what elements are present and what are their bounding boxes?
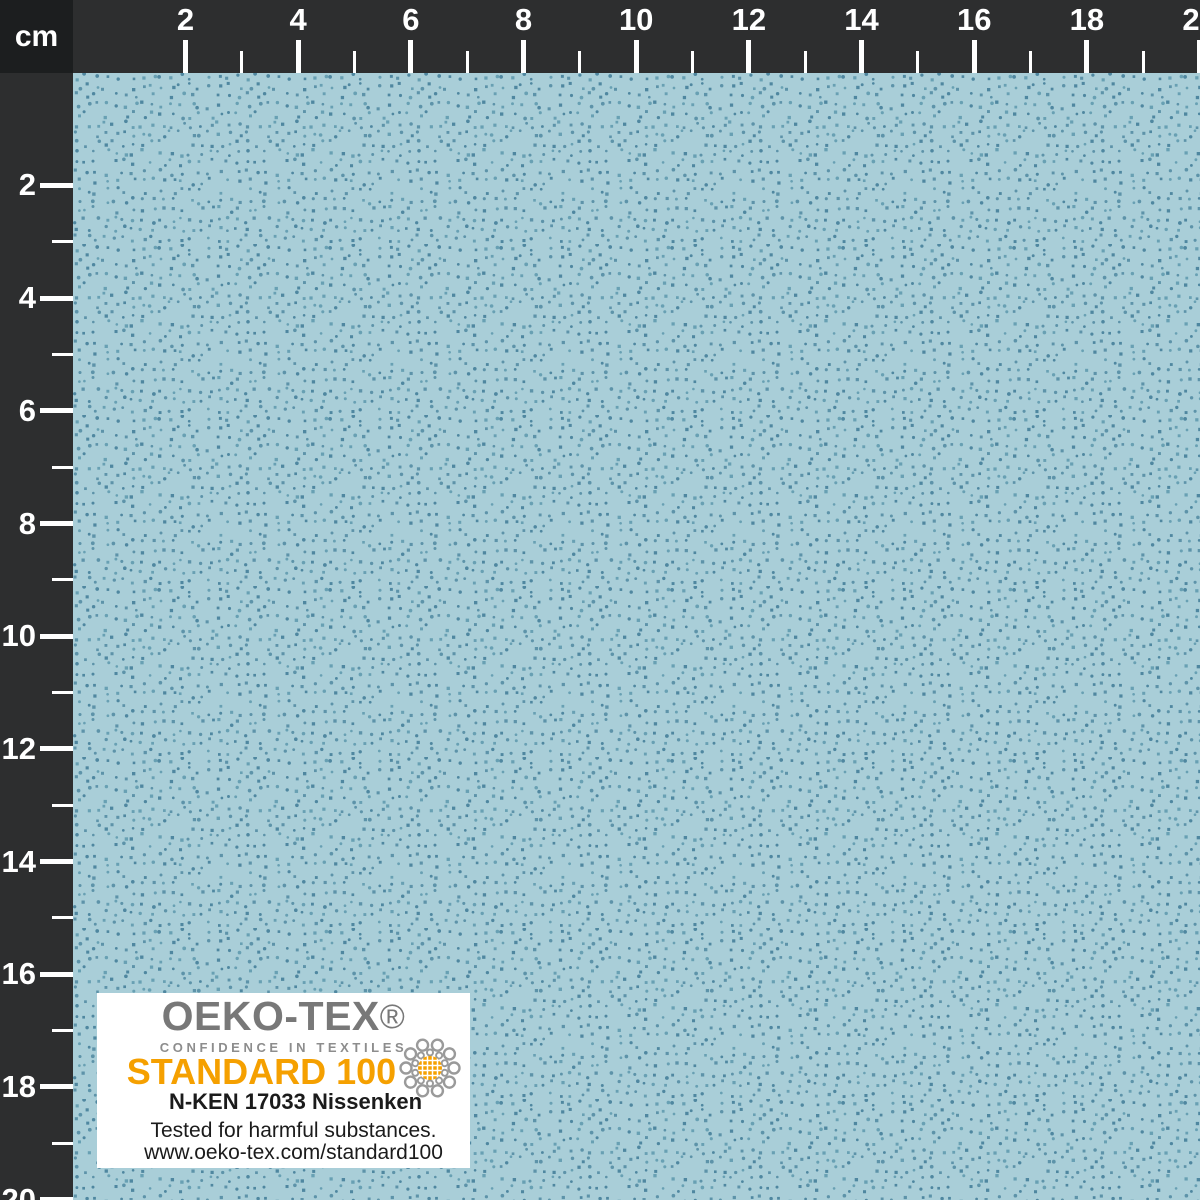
ruler-tick (1084, 40, 1089, 73)
ruler-tick (859, 40, 864, 73)
ruler-tick (40, 1084, 73, 1089)
oeko-tex-brand: OEKO-TEX® (97, 993, 470, 1040)
ruler-number: 12 (704, 3, 794, 37)
ruler-tick (52, 804, 73, 807)
ruler-tick (52, 240, 73, 243)
ruler-tick (240, 51, 243, 73)
ruler-tick (972, 40, 977, 73)
ruler-tick (40, 859, 73, 864)
ruler-tick (52, 1142, 73, 1145)
ruler-number: 6 (0, 394, 36, 428)
ruler-tick (353, 51, 356, 73)
ruler-tick (466, 51, 469, 73)
ruler-tick (40, 746, 73, 751)
ruler-tick (40, 296, 73, 301)
ruler-number: 2 (0, 168, 36, 202)
ruler-tick (916, 51, 919, 73)
tested-statement: Tested for harmful substances. (107, 1119, 470, 1143)
ruler-tick (52, 353, 73, 356)
ruler-vertical: 2468101214161820 (0, 73, 73, 1200)
ruler-tick (40, 183, 73, 188)
ruler-number: 6 (366, 3, 456, 37)
fabric-product-photo: 2468101214161820 2468101214161820 cm OEK… (0, 0, 1200, 1200)
ruler-unit-box: cm (0, 0, 73, 73)
oeko-tex-website: www.oeko-tex.com/standard100 (107, 1141, 470, 1165)
ruler-tick (1029, 51, 1032, 73)
ruler-number: 20 (1155, 3, 1200, 37)
ruler-tick (183, 40, 188, 73)
ruler-number: 8 (0, 507, 36, 541)
ruler-tick (521, 40, 526, 73)
ruler-number: 18 (0, 1070, 36, 1104)
ruler-number: 14 (817, 3, 907, 37)
ruler-number: 14 (0, 845, 36, 879)
ruler-tick (746, 40, 751, 73)
ruler-tick (691, 51, 694, 73)
ruler-tick (634, 40, 639, 73)
ruler-tick (52, 691, 73, 694)
ruler-tick (52, 578, 73, 581)
ruler-tick (40, 521, 73, 526)
ruler-number: 16 (0, 957, 36, 991)
ruler-number: 10 (591, 3, 681, 37)
ruler-tick (408, 40, 413, 73)
ruler-unit-label: cm (15, 20, 58, 54)
ruler-horizontal: 2468101214161820 (73, 0, 1200, 73)
ruler-tick (52, 466, 73, 469)
ruler-number: 12 (0, 732, 36, 766)
ruler-number: 10 (0, 619, 36, 653)
ruler-tick (52, 916, 73, 919)
ruler-tick (578, 51, 581, 73)
registered-trademark-icon: ® (380, 998, 406, 1036)
ruler-tick (1142, 51, 1145, 73)
oeko-tex-certification-label: OEKO-TEX® CONFIDENCE IN TEXTILES STANDAR… (97, 993, 470, 1168)
oeko-tex-globe-ornament-icon (398, 1036, 462, 1100)
ruler-number: 4 (253, 3, 343, 37)
ruler-tick (40, 972, 73, 977)
ruler-tick (804, 51, 807, 73)
ruler-number: 16 (929, 3, 1019, 37)
ruler-number: 18 (1042, 3, 1132, 37)
ruler-tick (52, 1029, 73, 1032)
ruler-number: 8 (479, 3, 569, 37)
ruler-number: 2 (140, 3, 230, 37)
ruler-number: 20 (0, 1183, 36, 1200)
ruler-tick (40, 634, 73, 639)
ruler-number: 4 (0, 281, 36, 315)
ruler-tick (296, 40, 301, 73)
ruler-tick (40, 408, 73, 413)
